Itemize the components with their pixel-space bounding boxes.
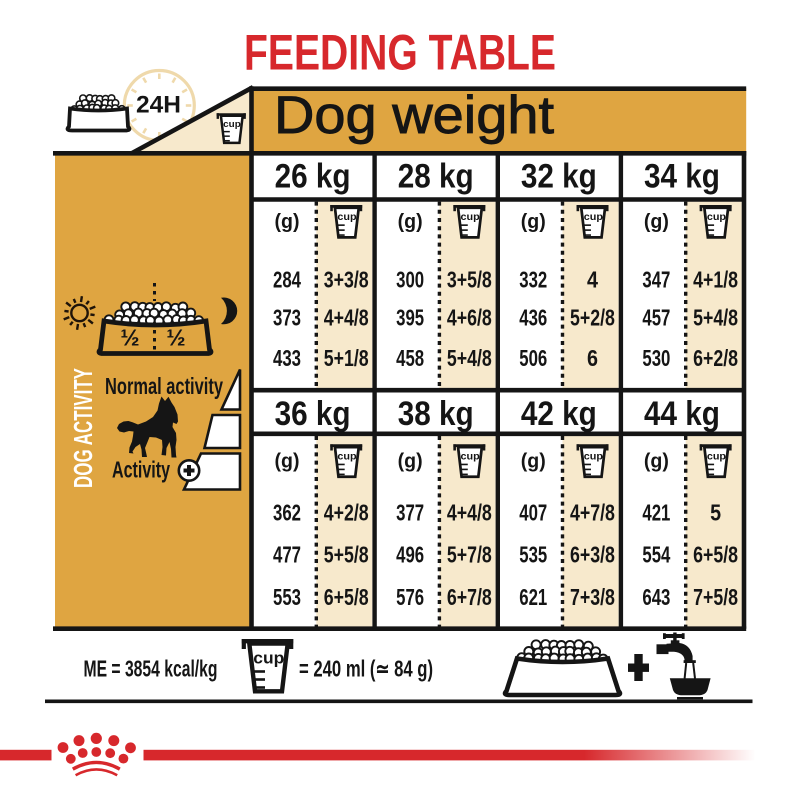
- svg-text:4+6/8: 4+6/8: [447, 305, 492, 331]
- svg-text:6+3/8: 6+3/8: [570, 542, 615, 568]
- svg-text:FEEDING TABLE: FEEDING TABLE: [244, 25, 556, 81]
- svg-text:621: 621: [519, 584, 547, 610]
- svg-text:5+2/8: 5+2/8: [570, 305, 615, 331]
- svg-text:Dog weight: Dog weight: [274, 86, 554, 145]
- svg-text:5+4/8: 5+4/8: [447, 345, 492, 371]
- svg-text:4+2/8: 4+2/8: [324, 500, 369, 526]
- svg-text:7+3/8: 7+3/8: [570, 584, 615, 610]
- svg-text:4+4/8: 4+4/8: [324, 305, 369, 331]
- svg-text:24H: 24H: [136, 92, 181, 119]
- svg-text:284: 284: [273, 267, 301, 293]
- svg-text:457: 457: [642, 305, 670, 331]
- svg-text:5+5/8: 5+5/8: [324, 542, 369, 568]
- svg-text:3+5/8: 3+5/8: [447, 267, 492, 293]
- svg-text:643: 643: [642, 584, 670, 610]
- svg-text:436: 436: [519, 305, 547, 331]
- svg-text:4+7/8: 4+7/8: [570, 500, 615, 526]
- svg-text:6+5/8: 6+5/8: [693, 542, 738, 568]
- svg-text:6+7/8: 6+7/8: [447, 584, 492, 610]
- svg-text:433: 433: [273, 345, 301, 371]
- svg-text:= 240 ml (≃ 84 g): = 240 ml (≃ 84 g): [299, 656, 433, 682]
- svg-text:(g): (g): [275, 211, 300, 233]
- svg-text:(g): (g): [521, 451, 546, 473]
- svg-text:(g): (g): [398, 211, 423, 233]
- svg-text:458: 458: [396, 345, 424, 371]
- svg-text:300: 300: [396, 267, 424, 293]
- svg-text:(g): (g): [398, 451, 423, 473]
- svg-text:6+5/8: 6+5/8: [324, 584, 369, 610]
- svg-text:554: 554: [642, 542, 670, 568]
- svg-text:5: 5: [710, 500, 721, 526]
- svg-text:477: 477: [273, 542, 301, 568]
- svg-text:DOG ACTIVITY: DOG ACTIVITY: [70, 368, 98, 488]
- svg-text:421: 421: [642, 500, 670, 526]
- svg-text:5+1/8: 5+1/8: [324, 345, 369, 371]
- svg-text:3+3/8: 3+3/8: [324, 267, 369, 293]
- svg-text:38 kg: 38 kg: [398, 395, 474, 433]
- svg-text:(g): (g): [644, 451, 669, 473]
- svg-text:530: 530: [642, 345, 670, 371]
- svg-text:½: ½: [166, 325, 185, 351]
- svg-text:34 kg: 34 kg: [644, 158, 720, 196]
- svg-text:332: 332: [519, 267, 547, 293]
- svg-text:(g): (g): [275, 451, 300, 473]
- svg-text:373: 373: [273, 305, 301, 331]
- svg-text:42 kg: 42 kg: [521, 395, 597, 433]
- svg-text:407: 407: [519, 500, 547, 526]
- svg-text:4+1/8: 4+1/8: [693, 267, 738, 293]
- svg-text:362: 362: [273, 500, 301, 526]
- svg-text:32 kg: 32 kg: [521, 158, 597, 196]
- svg-text:(g): (g): [644, 211, 669, 233]
- svg-text:ME = 3854 kcal/kg: ME = 3854 kcal/kg: [84, 656, 218, 682]
- svg-text:26 kg: 26 kg: [275, 158, 351, 196]
- svg-text:28 kg: 28 kg: [398, 158, 474, 196]
- svg-text:½: ½: [120, 325, 139, 351]
- svg-text:44 kg: 44 kg: [644, 395, 720, 433]
- svg-text:535: 535: [519, 542, 547, 568]
- svg-text:5+7/8: 5+7/8: [447, 542, 492, 568]
- svg-text:36 kg: 36 kg: [275, 395, 351, 433]
- svg-text:5+4/8: 5+4/8: [693, 305, 738, 331]
- svg-text:576: 576: [396, 584, 424, 610]
- svg-text:(g): (g): [521, 211, 546, 233]
- svg-text:4+4/8: 4+4/8: [447, 500, 492, 526]
- svg-text:6: 6: [587, 345, 598, 371]
- svg-text:496: 496: [396, 542, 424, 568]
- svg-text:Normal activity: Normal activity: [105, 373, 223, 399]
- svg-text:347: 347: [642, 267, 670, 293]
- svg-text:6+2/8: 6+2/8: [693, 345, 738, 371]
- svg-text:Activity: Activity: [112, 457, 170, 483]
- svg-text:506: 506: [519, 345, 547, 371]
- svg-text:7+5/8: 7+5/8: [693, 584, 738, 610]
- svg-text:377: 377: [396, 500, 424, 526]
- svg-text:395: 395: [396, 305, 424, 331]
- svg-text:4: 4: [587, 267, 598, 293]
- svg-text:553: 553: [273, 584, 301, 610]
